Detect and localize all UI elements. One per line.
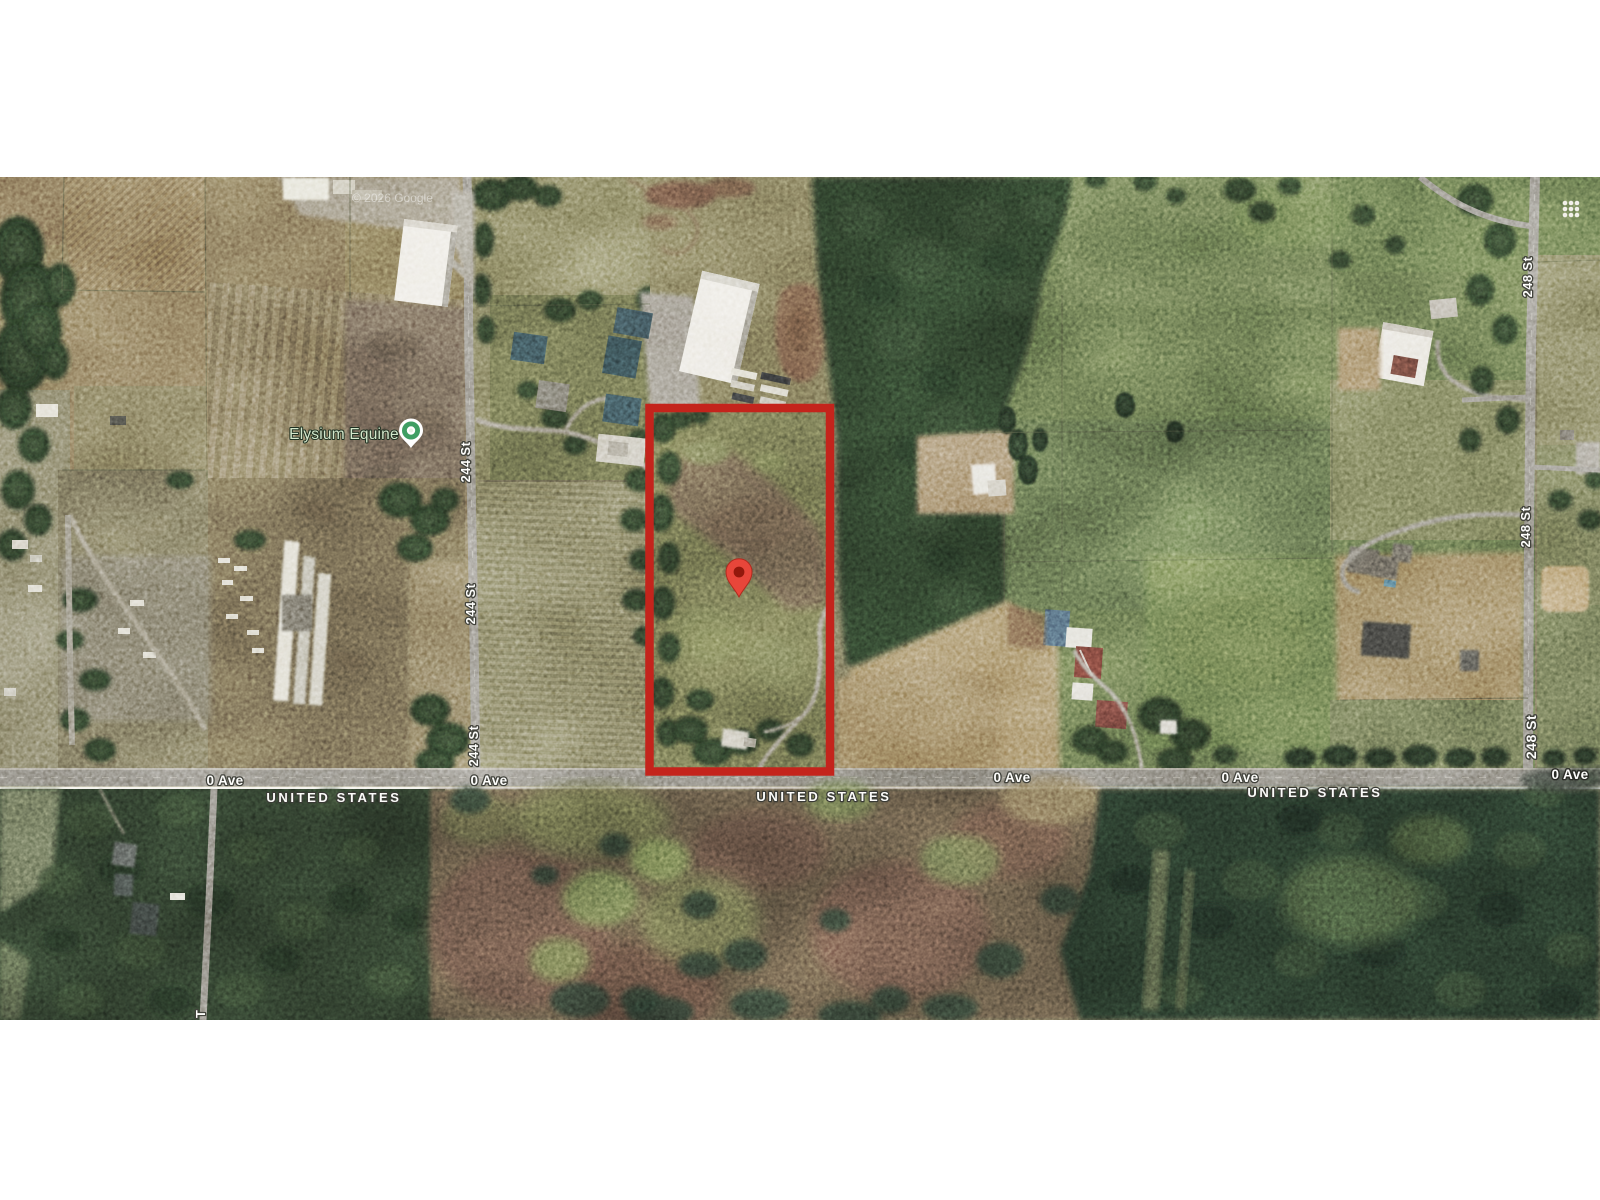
svg-text:248 St: 248 St: [1520, 256, 1535, 297]
svg-text:248 St: 248 St: [1518, 506, 1533, 547]
svg-text:244 St: 244 St: [463, 583, 478, 624]
svg-text:UNITED STATES: UNITED STATES: [266, 790, 401, 805]
svg-text:248 St: 248 St: [1523, 715, 1539, 759]
svg-text:244 St: 244 St: [466, 725, 481, 766]
svg-text:0 Ave: 0 Ave: [993, 770, 1030, 785]
svg-text:T: T: [193, 1010, 208, 1018]
svg-text:UNITED STATES: UNITED STATES: [756, 789, 891, 804]
svg-text:UNITED STATES: UNITED STATES: [1247, 785, 1382, 800]
svg-text:0 Ave: 0 Ave: [470, 773, 507, 788]
svg-text:Elysium Equine: Elysium Equine: [289, 426, 399, 443]
svg-text:0 Ave: 0 Ave: [206, 773, 243, 788]
svg-text:0 Ave: 0 Ave: [1221, 770, 1258, 785]
svg-text:0 Ave: 0 Ave: [1551, 767, 1588, 782]
svg-text:© 2026 Google: © 2026 Google: [352, 191, 433, 205]
svg-text:244 St: 244 St: [458, 441, 473, 482]
